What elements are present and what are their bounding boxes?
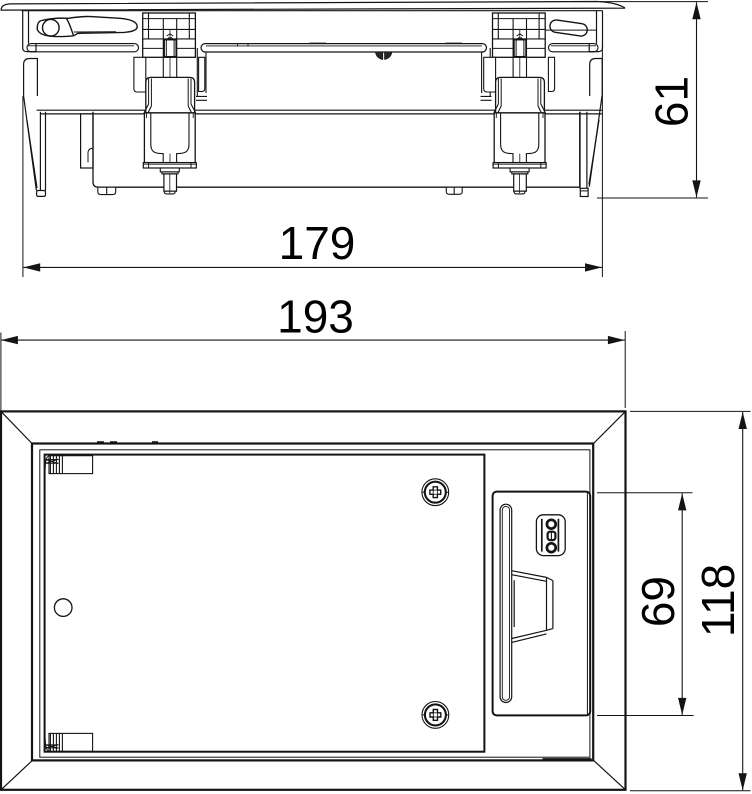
svg-text:118: 118 bbox=[692, 564, 744, 637]
svg-text:179: 179 bbox=[279, 217, 356, 269]
svg-text:69: 69 bbox=[632, 576, 684, 627]
svg-text:193: 193 bbox=[277, 290, 354, 342]
svg-text:61: 61 bbox=[645, 76, 697, 127]
